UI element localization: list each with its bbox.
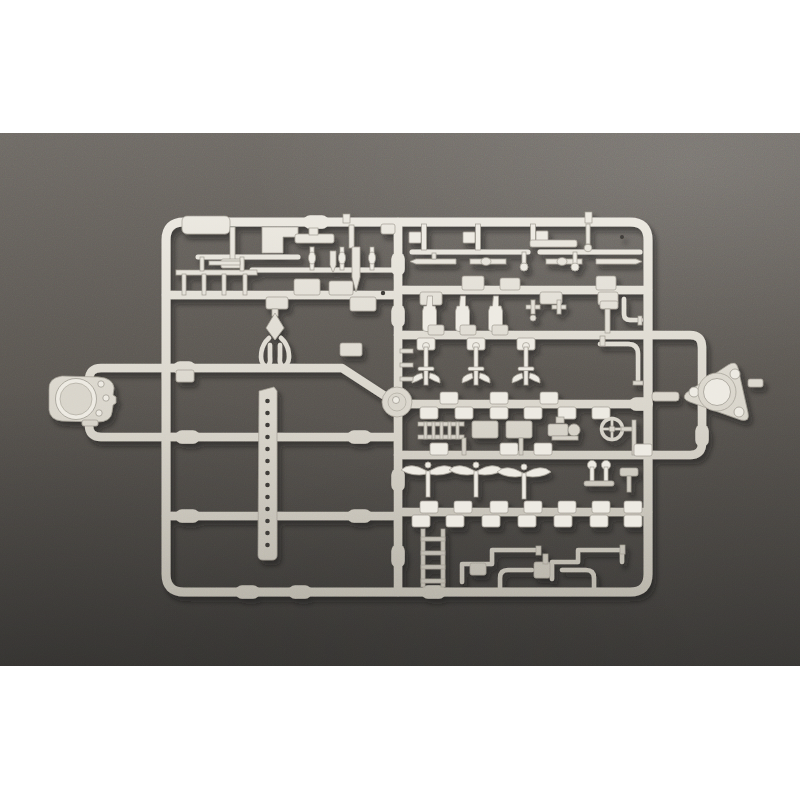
product-image [0,0,800,800]
letterbox-bottom [0,666,800,800]
grain-overlay [0,133,800,666]
product-photo [0,133,800,666]
letterbox-top [0,0,800,133]
